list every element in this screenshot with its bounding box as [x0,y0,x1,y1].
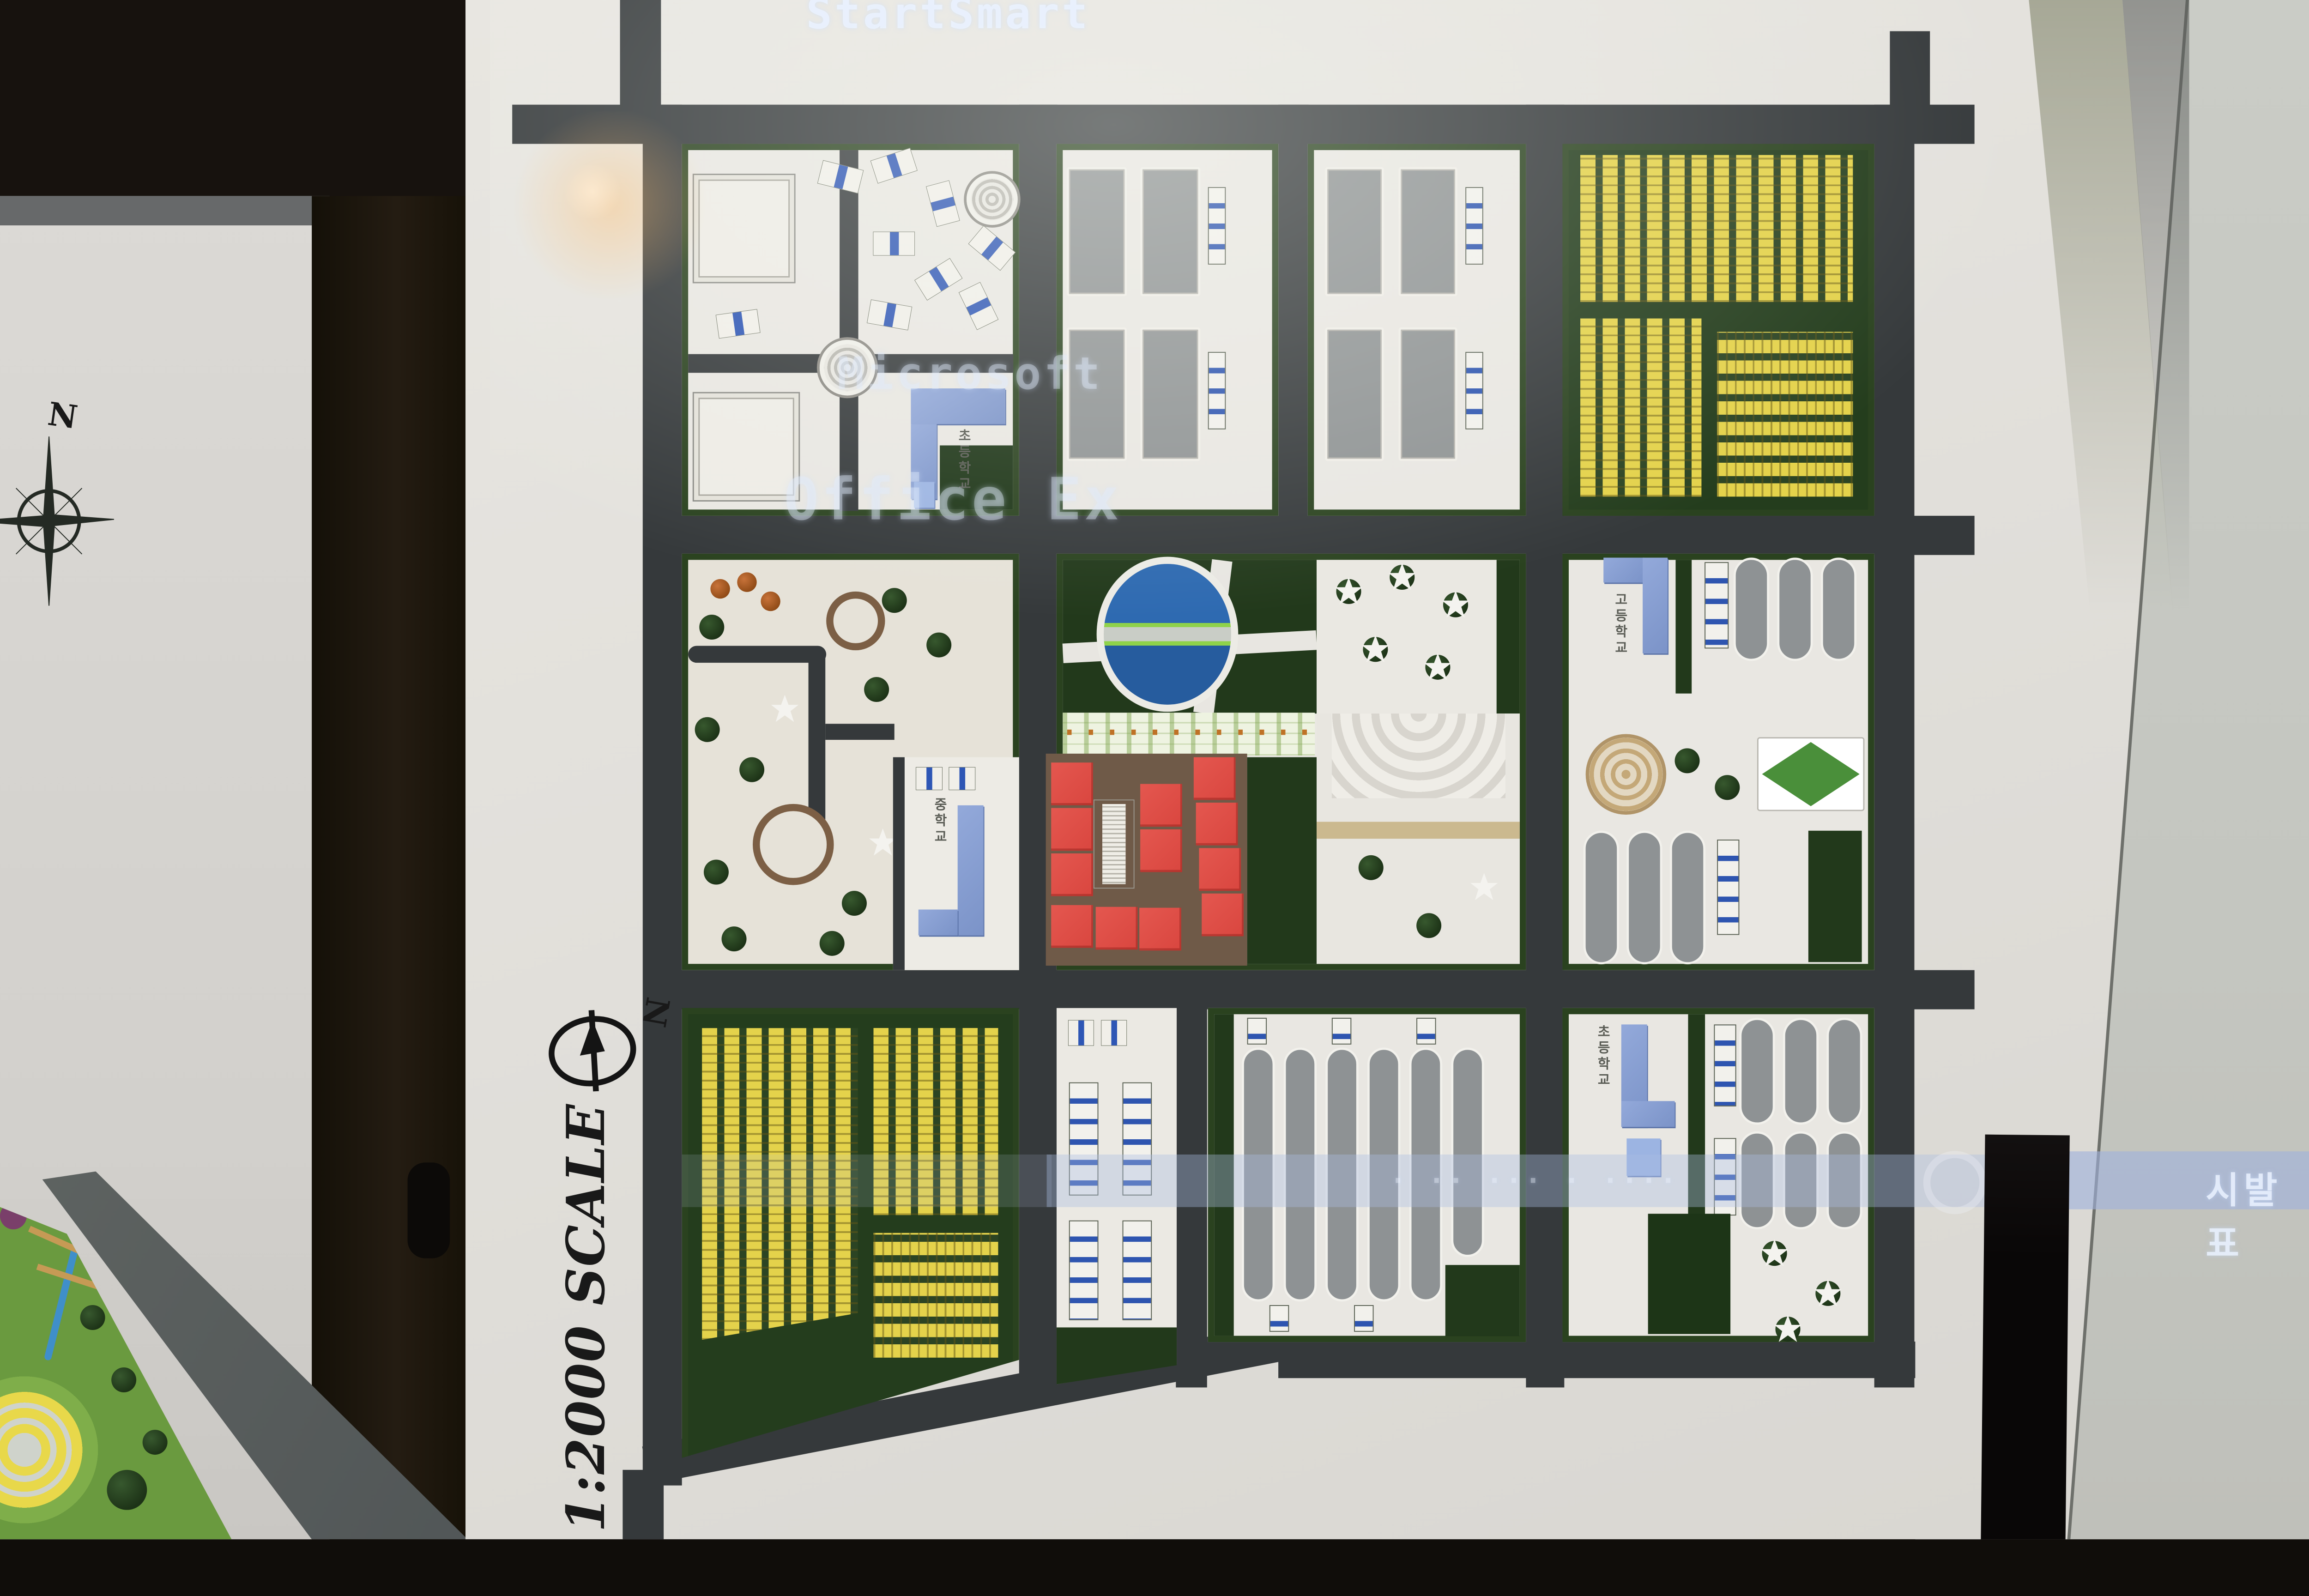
building-small [949,767,975,790]
park-circle-plaza [753,804,834,885]
plaza-path [1317,822,1520,839]
park-tree [1715,775,1740,800]
school-elementary-se-label: 초등학교 [1592,1024,1612,1100]
red-apartment [1194,757,1236,800]
warehouse-striped [1332,1018,1351,1045]
school-middle-w-label: 중학교 [929,797,949,868]
building-small [916,767,943,790]
warehouse-striped [1354,1305,1373,1332]
apartment-striped [1717,840,1739,935]
middle-school-building [958,805,984,936]
red-apartment [1096,907,1138,950]
red-apartment [1139,908,1181,951]
park-tree [864,677,889,702]
red-apartment [1051,905,1093,948]
map-tree [143,1430,168,1455]
lens-glare-core [561,165,623,218]
warehouse-striped [1247,1018,1267,1045]
board-gap-shadow [312,196,465,1539]
map-tree [80,1305,105,1330]
ticker-band-faint [682,1155,1052,1207]
plaza-tree [1359,855,1384,880]
red-apartment [1051,853,1093,896]
projected-word-microsoft: Microsoft [837,347,1103,399]
compass-rose: N [0,392,133,615]
park-drive [688,646,826,663]
park-square [1445,1265,1520,1336]
neighborhood-plaza [1586,734,1667,815]
road-stub-bottom-left [623,1470,664,1539]
tree-strip [1247,757,1317,964]
ticker-text-faint: · ·· ··· · ···· [1390,1164,1679,1197]
road-bottom [1278,1342,1915,1378]
sports-field [1757,737,1864,811]
red-apartment [1140,784,1182,827]
north-marker: N [539,1002,672,1118]
red-apartment [1199,848,1241,891]
middle-school-wing [919,910,958,936]
stand-knob [408,1162,450,1258]
park-drive [825,724,894,740]
apartment-slab [1584,831,1619,964]
apartment-slab [1783,1018,1819,1124]
amphitheater [1332,713,1505,798]
apartment-slab [1826,1018,1862,1124]
garden-plots [1067,730,1311,735]
apartment-slab [1670,831,1705,964]
factory-slab [1451,1048,1484,1257]
apartment-striped [1714,1024,1736,1106]
red-apartment [1140,829,1182,872]
building-small [1101,1020,1127,1046]
projected-title: StartSmart [806,0,1090,38]
ticker-logo-icon [1923,1151,1987,1214]
housing-rows [873,1233,998,1358]
park-tree [926,633,951,658]
map-tree [111,1367,136,1392]
warehouse-striped [1416,1018,1436,1045]
red-apartment [1051,808,1093,851]
red-apartment [1196,803,1238,846]
park-tree [722,926,747,951]
scale-label: 1:2000 SCALE [555,1103,617,1532]
park-tree [820,931,845,956]
left-board-top-edge [0,196,330,225]
warehouse-striped [1269,1305,1289,1332]
park-tree [695,717,720,742]
rowhouse-striped [1123,1221,1152,1320]
foreground-pole [1981,1135,2069,1540]
tree-strip [1808,831,1862,962]
park-tree [842,891,867,916]
rowhouse-striped [1069,1221,1099,1320]
apartment-slab [1739,1018,1775,1124]
park-square [1648,1214,1730,1334]
park-tree [1675,748,1700,773]
sub-block-lane [893,757,905,970]
ticker-text-right: 시발표 [2206,1161,2309,1267]
community-center-building [1094,799,1135,889]
photo-of-architectural-model: N [0,0,2309,1539]
red-apartment [1051,762,1093,805]
apartment-slab [1626,831,1662,964]
red-apartment [1202,894,1244,937]
projected-word-office: Office Ex [784,465,1122,533]
projector-haze [490,0,2049,623]
map-tree [107,1470,147,1510]
elementary-school-2-wing [1621,1101,1675,1127]
park-tree [739,757,764,782]
park-tree [704,859,729,884]
park-drive [809,655,826,820]
building-small [1068,1020,1094,1046]
plaza-tree [1416,913,1441,938]
road-h3 [644,970,1975,1010]
